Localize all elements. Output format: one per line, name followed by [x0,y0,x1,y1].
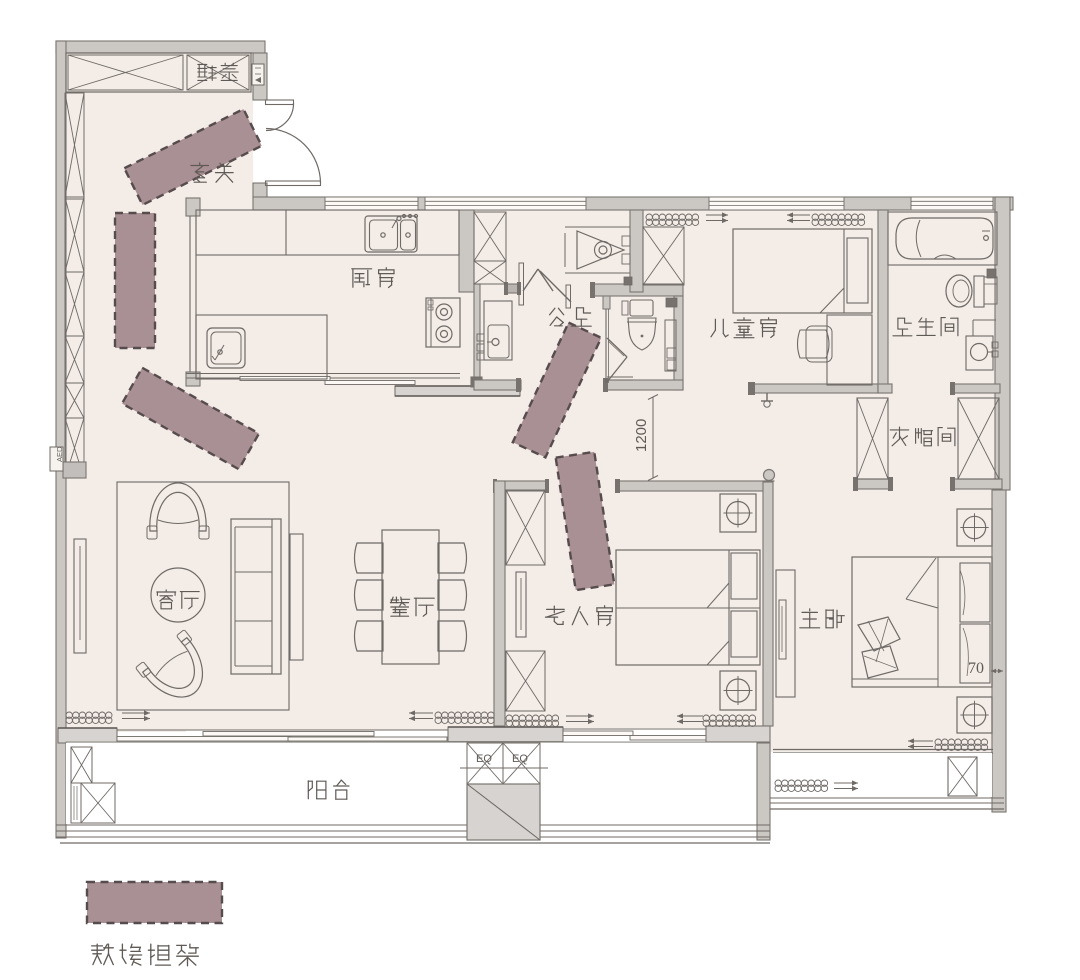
svg-text:1200: 1200 [633,419,650,452]
svg-text:EQ: EQ [476,753,492,765]
svg-text:AED: AED [55,446,64,462]
svg-text:EQ: EQ [512,753,528,765]
svg-text:70: 70 [968,660,984,677]
